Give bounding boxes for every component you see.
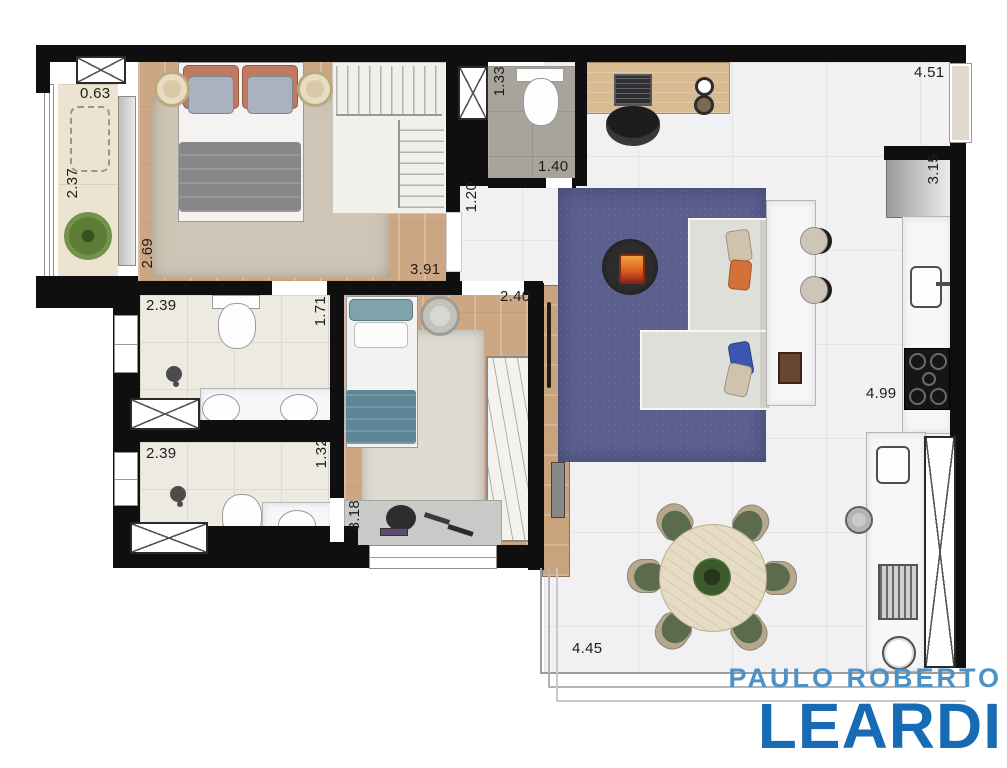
dim-bedroom1-width: 3.91 [410,261,440,278]
bedroom2-side-table [420,296,460,336]
desk-cup-1 [695,77,714,96]
dim-bath1-depth: 1.71 [312,296,329,326]
shaft-balcony [76,56,126,84]
cooktop-burner-3 [909,388,926,405]
shaft-powder [458,66,488,120]
wall-mounted-tv [551,462,565,518]
wc-toilet-bowl [523,78,559,126]
bath-suite-window [114,315,138,373]
dim-kitchen-niche-depth: 3.15 [925,154,942,184]
island-stool-2 [800,276,828,304]
balcony-glass-railing [44,84,54,282]
single-bed-blanket [346,390,416,444]
bedroom2-desk [344,500,502,546]
service-sink-square [876,446,910,484]
desk-cup-2 [694,95,714,115]
brand-logo-line2: LEARDI [728,694,1002,758]
cooktop-burner-4 [930,388,947,405]
nightstand-lamp-left [154,71,190,107]
wall-bedroom2-living [528,283,544,570]
powder-room-door [546,178,572,188]
wall-under-bedroom2-left [355,545,369,568]
dim-hall-width: 1.20 [463,182,480,212]
dim-bedroom2-width: 2.40 [500,288,530,305]
fire-table-flame [619,254,645,284]
dim-bedroom2-depth: 3.18 [346,500,363,530]
shaft-between-baths [130,398,200,430]
water-heater [845,506,873,534]
wall-top [36,45,965,62]
closet-rack-right [398,120,444,208]
bed-pillow-left [188,76,234,114]
laptop [614,74,652,106]
sofa-pillow-orange [727,259,752,291]
living-right-window [950,64,971,142]
wall-powder-right [575,62,587,186]
bath2-window [114,452,138,506]
bed-pillow-right [247,76,293,114]
bath2-door [330,498,344,542]
service-window-shaft [924,436,956,668]
dim-bath1-width: 2.39 [146,297,176,314]
brand-logo: PAULO ROBERTO LEARDI [728,665,1002,758]
bed-blanket [179,142,301,212]
refrigerator [886,158,952,218]
island-stool-1 [800,227,828,255]
brand-logo-line1: PAULO ROBERTO [728,665,1002,692]
dining-centerpiece-plant [693,558,731,596]
bedroom1-door [446,212,462,272]
dim-balcony-width: 0.63 [80,85,110,102]
closet-rack-top [336,66,442,116]
suite-toilet-bowl [218,303,256,349]
shaft-below-bath2 [130,522,208,554]
dim-bedroom1-depth: 2.69 [139,238,156,268]
bedroom2-window [369,545,497,569]
floor-plan: 0.63 2.37 2.69 3.91 1.33 1.40 1.20 4.51 … [0,0,1007,768]
bath2-shower-head [170,486,186,502]
balcony-plant [64,212,112,260]
living-glass-facade-left-3 [556,568,558,702]
dim-balcony-depth: 2.37 [64,168,81,198]
suite-bath-door [272,281,327,295]
balcony-table-outline [70,106,110,172]
cooktop-burner-2 [930,353,947,370]
dim-bath2-depth: 1.32 [313,438,330,468]
wall-bedroom1-door-top [446,186,460,212]
cooktop-burner-center [922,372,936,386]
nightstand-lamp-right [297,71,333,107]
living-glass-facade-left-2 [548,568,550,688]
single-bed-pillow [354,322,408,348]
balcony-sliding-door [118,96,136,266]
wall-left-top [36,45,50,93]
wall-under-bedroom2-right [495,545,543,568]
dim-wc-depth: 1.40 [538,158,568,175]
cooktop-burner-1 [909,353,926,370]
suite-shower-head [166,366,182,382]
single-bed-headboard-cushion [349,299,413,321]
sofa-pillow-beige-1 [725,228,753,263]
dim-living-bottom-width: 4.45 [572,640,602,657]
living-glass-facade-left [540,568,542,674]
office-chair [606,106,660,146]
dim-living-top-width: 4.51 [914,64,944,81]
bedroom2-books [380,528,408,536]
kitchen-sink [910,266,942,308]
washing-machine [878,564,918,620]
dim-kitchen-run-length: 4.99 [866,385,896,402]
dim-bath2-width: 2.39 [146,445,176,462]
kitchen-faucet [936,282,950,286]
island-tray [778,352,802,384]
wood-panel-handle [547,302,551,388]
dim-wc-width: 1.33 [491,66,508,96]
